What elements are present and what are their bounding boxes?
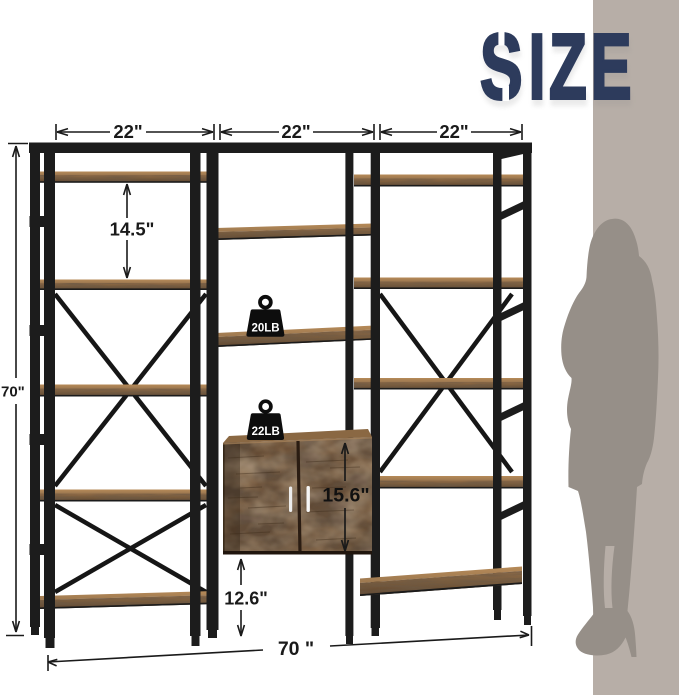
svg-text:70 ": 70 " [278,638,314,660]
svg-text:14.5": 14.5" [110,219,155,240]
svg-text:I: I [529,14,546,118]
svg-text:22": 22" [439,121,468,142]
svg-text:22LB: 22LB [252,426,280,438]
svg-text:20LB: 20LB [251,323,279,335]
svg-text:70": 70" [1,384,25,401]
svg-text:12.6": 12.6" [224,589,268,609]
svg-text:E: E [591,15,632,119]
svg-text:Z: Z [549,15,587,119]
svg-text:22": 22" [281,121,310,142]
svg-text:15.6": 15.6" [322,485,369,507]
svg-text:22": 22" [113,121,142,142]
